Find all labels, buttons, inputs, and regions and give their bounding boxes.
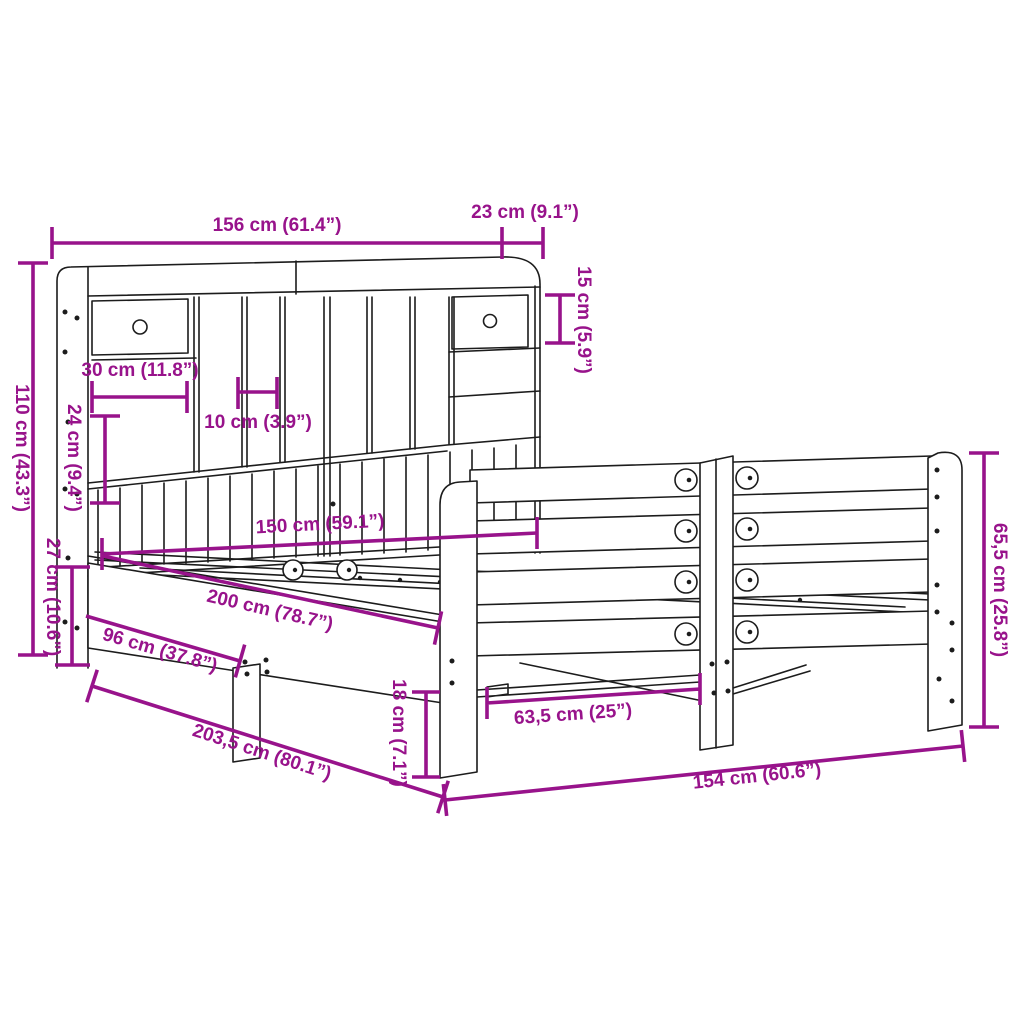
- dimension-label: 156 cm (61.4”): [213, 215, 342, 236]
- bed-dimension-diagram: 156 cm (61.4”) 23 cm (9.1”) 15 cm (5.9”)…: [0, 0, 1024, 1024]
- dimension-label: 23 cm (9.1”): [471, 202, 579, 223]
- dimension-label: 15 cm (5.9”): [573, 266, 594, 374]
- dimension-line: [502, 227, 543, 259]
- dimension-label: 10 cm (3.9”): [204, 412, 312, 433]
- dimension-headboard-depth: 23 cm (9.1”): [471, 202, 579, 259]
- under-bed-support: [477, 663, 700, 700]
- dimension-label: 65,5 cm (25.8”): [989, 523, 1010, 657]
- dimension-label: 154 cm (60.6”): [692, 759, 822, 793]
- dimension-slat-panel-height: 24 cm (9.4”): [63, 404, 120, 512]
- footboard-drawing: [440, 452, 962, 778]
- cam-lock-icon: [736, 518, 758, 540]
- cam-lock-icon: [675, 623, 697, 645]
- cam-lock-icon: [736, 621, 758, 643]
- dimension-line: [238, 377, 277, 409]
- dimension-label: 110 cm (43.3”): [11, 384, 32, 512]
- far-side-support: [733, 665, 810, 694]
- dimension-line: [545, 295, 575, 343]
- dimension-label: 30 cm (11.8”): [81, 360, 198, 381]
- dimension-tick: [961, 730, 964, 762]
- dimension-line: [90, 416, 120, 503]
- footboard-right-post: [928, 452, 962, 731]
- cam-lock-icon: [736, 467, 758, 489]
- drawer-left: [92, 299, 188, 355]
- headboard-top-shelf-line: [88, 287, 540, 296]
- dimension-label: 24 cm (9.4”): [63, 404, 84, 512]
- footboard-front-post: [440, 481, 477, 778]
- dimension-label: 63,5 cm (25”): [513, 700, 632, 729]
- dimension-label: 27 cm (10.6”): [42, 538, 63, 656]
- diagram-canvas: 156 cm (61.4”) 23 cm (9.1”) 15 cm (5.9”)…: [0, 0, 1024, 1024]
- dimension-cubby-width: 10 cm (3.9”): [204, 377, 312, 433]
- dimension-label: 18 cm (7.1”): [388, 679, 409, 787]
- dimension-drawer-width: 30 cm (11.8”): [81, 360, 198, 413]
- dimension-label: 203,5 cm (80.1”): [190, 720, 334, 785]
- dimension-top-shelf-height: 15 cm (5.9”): [545, 266, 594, 374]
- cam-lock-icon: [675, 469, 697, 491]
- dimension-line: [92, 381, 187, 413]
- drawer-right: [452, 295, 528, 349]
- right-section-shelf: [449, 391, 540, 397]
- drawer-knob-icon: [484, 315, 497, 328]
- cam-lock-icon: [675, 571, 697, 593]
- drawer-knob-icon: [133, 320, 147, 334]
- cam-lock-icon: [736, 569, 758, 591]
- dimension-footboard-height: 65,5 cm (25.8”): [969, 453, 1010, 727]
- dimension-line: [412, 692, 440, 777]
- dimension-headboard-width: 156 cm (61.4”): [52, 215, 502, 259]
- cam-lock-icon: [675, 520, 697, 542]
